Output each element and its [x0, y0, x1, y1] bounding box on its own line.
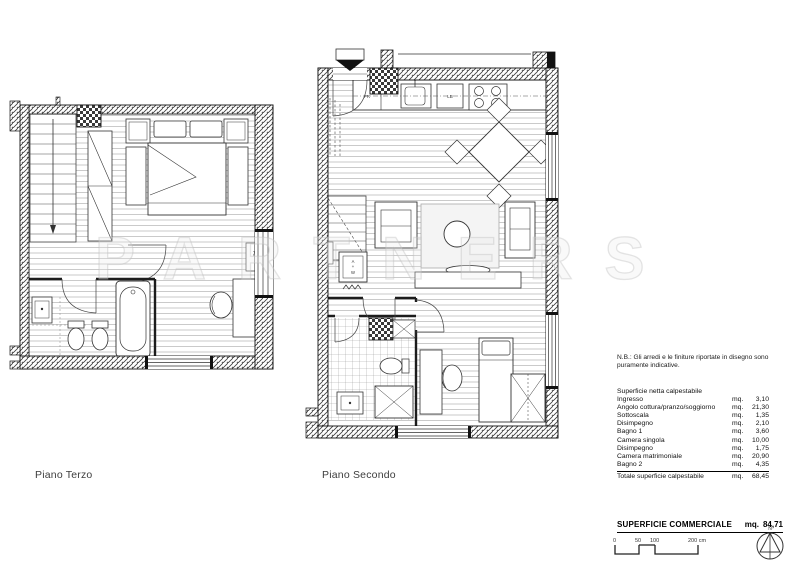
row-unit: mq.	[732, 420, 747, 428]
row-label: Disimpegno	[617, 420, 732, 428]
desk	[420, 350, 442, 414]
row-value: 3,10	[747, 396, 769, 404]
total-value: 68,45	[747, 473, 769, 481]
armchair	[505, 202, 535, 258]
row-unit: mq.	[732, 437, 747, 445]
bidet	[92, 321, 108, 350]
total-label: Totale superficie calpestabile	[617, 473, 732, 481]
table-row: Sottoscala mq. 1,35	[617, 412, 769, 420]
row-unit: mq.	[732, 404, 747, 412]
shower	[375, 386, 413, 418]
row-value: 1,35	[747, 412, 769, 420]
toilet	[68, 321, 84, 350]
window-bottom	[145, 356, 213, 369]
area-table: Superficie netta calpestabile Ingresso m…	[617, 388, 769, 481]
table-total-row: Totale superficie calpestabile mq. 68,45	[617, 473, 769, 481]
row-unit: mq.	[732, 445, 747, 453]
row-value: 20,90	[747, 453, 769, 461]
entrance	[333, 49, 367, 80]
pillow	[482, 341, 510, 355]
north-label: N	[768, 526, 772, 532]
table-row: Bagno 1 mq. 3,60	[617, 428, 769, 436]
table-row: Bagno 2 mq. 4,35	[617, 461, 769, 469]
wall-block	[547, 52, 555, 68]
chair	[442, 365, 462, 391]
toilet	[380, 358, 409, 374]
pillow	[154, 121, 186, 137]
caption-piano-secondo: Piano Secondo	[322, 469, 396, 481]
row-label: Sottoscala	[617, 412, 732, 420]
corner-shelf	[393, 320, 415, 338]
shaft	[370, 68, 398, 94]
caption-piano-terzo: Piano Terzo	[35, 469, 92, 481]
row-value: 1,75	[747, 445, 769, 453]
window-right-lower	[546, 312, 558, 389]
coffee-table	[444, 221, 470, 247]
washer: A + W	[339, 252, 367, 282]
scale-tick-0: 0	[613, 538, 616, 544]
disclaimer-note: N.B.: Gli arredi e le finiture riportate…	[617, 354, 780, 369]
area-table-title: Superficie netta calpestabile	[617, 388, 769, 396]
row-unit: mq.	[732, 453, 747, 461]
row-value: 2,10	[747, 420, 769, 428]
scale-bar-shape	[615, 545, 698, 554]
row-unit: mq.	[732, 428, 747, 436]
staircase	[30, 114, 76, 242]
table-row: Camera singola mq. 10,00	[617, 437, 769, 445]
row-value: 21,30	[747, 404, 769, 412]
row-label: Bagno 1	[617, 428, 732, 436]
shaft	[369, 318, 393, 340]
table-row: Camera matrimoniale mq. 20,90	[617, 453, 769, 461]
row-label: Bagno 2	[617, 461, 732, 469]
row-label: Ingresso	[617, 396, 732, 404]
table-row: Ingresso mq. 3,10	[617, 396, 769, 404]
window-right	[255, 229, 273, 298]
sink	[337, 392, 363, 414]
scale-bar: 0 50 100 200 cm	[612, 536, 716, 560]
single-bed	[479, 338, 513, 422]
window-bottom	[395, 426, 471, 438]
floor-plan-piano-terzo: FC	[8, 93, 283, 385]
row-unit: mq.	[732, 461, 747, 469]
row-label: Disimpegno	[617, 445, 732, 453]
floor-plan-piano-secondo: FR LB A +	[303, 46, 568, 451]
floor-plan-sheet: { "watermark": "PARTNERS", "plans": { "l…	[0, 0, 800, 567]
pillow	[190, 121, 222, 137]
sofa	[375, 202, 417, 248]
row-label: Camera singola	[617, 437, 732, 445]
north-indicator: N	[752, 524, 788, 564]
row-label: Angolo cottura/pranzo/soggiorno	[617, 404, 732, 412]
table-total-divider	[617, 470, 769, 472]
table-row: Angolo cottura/pranzo/soggiorno mq. 21,3…	[617, 404, 769, 412]
radiator	[328, 242, 333, 264]
washer-tag-w: W	[351, 270, 355, 275]
window-right-upper	[546, 132, 558, 201]
row-value: 4,35	[747, 461, 769, 469]
wardrobe	[511, 374, 545, 422]
shaft	[77, 105, 101, 127]
scale-tick-50: 50	[635, 538, 641, 544]
area-table-title-row: Superficie netta calpestabile	[617, 388, 769, 396]
wardrobe	[88, 131, 112, 241]
row-unit: mq.	[732, 412, 747, 420]
bathtub	[116, 281, 150, 357]
total-unit: mq.	[732, 473, 747, 481]
row-label: Camera matrimoniale	[617, 453, 732, 461]
scale-tick-200: 200 cm	[688, 538, 706, 544]
table-row: Disimpegno mq. 1,75	[617, 445, 769, 453]
commercial-surface-label: SUPERFICIE COMMERCIALE	[617, 520, 745, 529]
sink	[32, 297, 52, 323]
chair	[210, 292, 232, 318]
desk	[233, 279, 255, 337]
table-row: Disimpegno mq. 2,10	[617, 420, 769, 428]
laundry-tag: LB	[447, 94, 453, 99]
scale-tick-100: 100	[650, 538, 659, 544]
row-unit: mq.	[732, 396, 747, 404]
row-value: 10,00	[747, 437, 769, 445]
row-value: 3,60	[747, 428, 769, 436]
